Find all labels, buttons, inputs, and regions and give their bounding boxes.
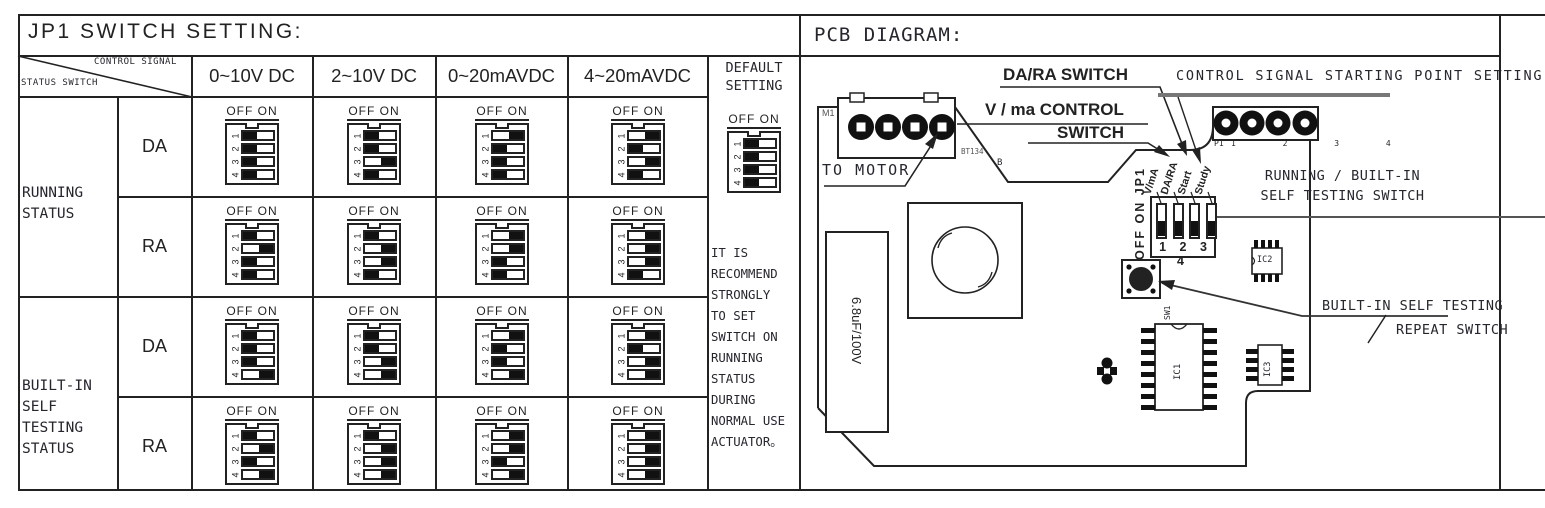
engineering-drawing-sheet: JP1 SWITCH SETTING: CONTROL SIGNAL STATU… — [0, 0, 1545, 508]
jp1-knob-2 — [1175, 221, 1182, 236]
jp1-pin-numbers: 1 2 3 4 — [1150, 240, 1216, 268]
capacitor-value-label: 6.8uF/100V — [849, 297, 864, 364]
jp1-slider-1 — [1156, 203, 1167, 239]
jp1-slider-3 — [1189, 203, 1200, 239]
jp1-slider-4 — [1206, 203, 1217, 239]
ic3-label: IC3 — [1263, 362, 1273, 377]
pcb-title: PCB DIAGRAM: — [814, 24, 963, 46]
bt134-pin-label: B — [997, 158, 1002, 168]
to-motor-label: TO MOTOR — [822, 161, 910, 179]
v-ma-switch-label-line2: SWITCH — [1057, 123, 1124, 143]
jp1-knob-4 — [1208, 221, 1215, 236]
p1-connector — [1213, 107, 1318, 140]
motor-connector — [838, 93, 955, 158]
repeat-switch-label-line2: REPEAT SWITCH — [1396, 322, 1508, 338]
jp1-knob-3 — [1191, 221, 1198, 236]
control-signal-label: CONTROL SIGNAL STARTING POINT SETTING — [1176, 68, 1543, 84]
mounting-square — [908, 203, 1022, 318]
corner-diagonal-line — [18, 56, 192, 97]
jp1-slider-2 — [1173, 203, 1184, 239]
p1-pin-numbers: 1 2 3 4 — [1231, 139, 1412, 148]
p1-connector-label: P1 — [1214, 139, 1224, 148]
bt134-label: BT134 — [961, 147, 984, 156]
ic2-label: IC2 — [1257, 255, 1272, 265]
da-ra-switch-label: DA/RA SWITCH — [1003, 65, 1128, 85]
sw1-label: SW1 — [1163, 306, 1172, 320]
running-selftest-switch-label: RUNNING / BUILT-IN SELF TESTING SWITCH — [1245, 166, 1440, 206]
repeat-switch-label-line1: BUILT-IN SELF TESTING — [1322, 298, 1503, 314]
m1-connector-label: M1 — [822, 108, 835, 118]
ic1-label: IC1 — [1173, 364, 1183, 380]
diode-component — [1097, 358, 1117, 385]
jp1-knob-1 — [1158, 221, 1165, 236]
v-ma-switch-label-line1: V / ma CONTROL — [985, 100, 1124, 120]
